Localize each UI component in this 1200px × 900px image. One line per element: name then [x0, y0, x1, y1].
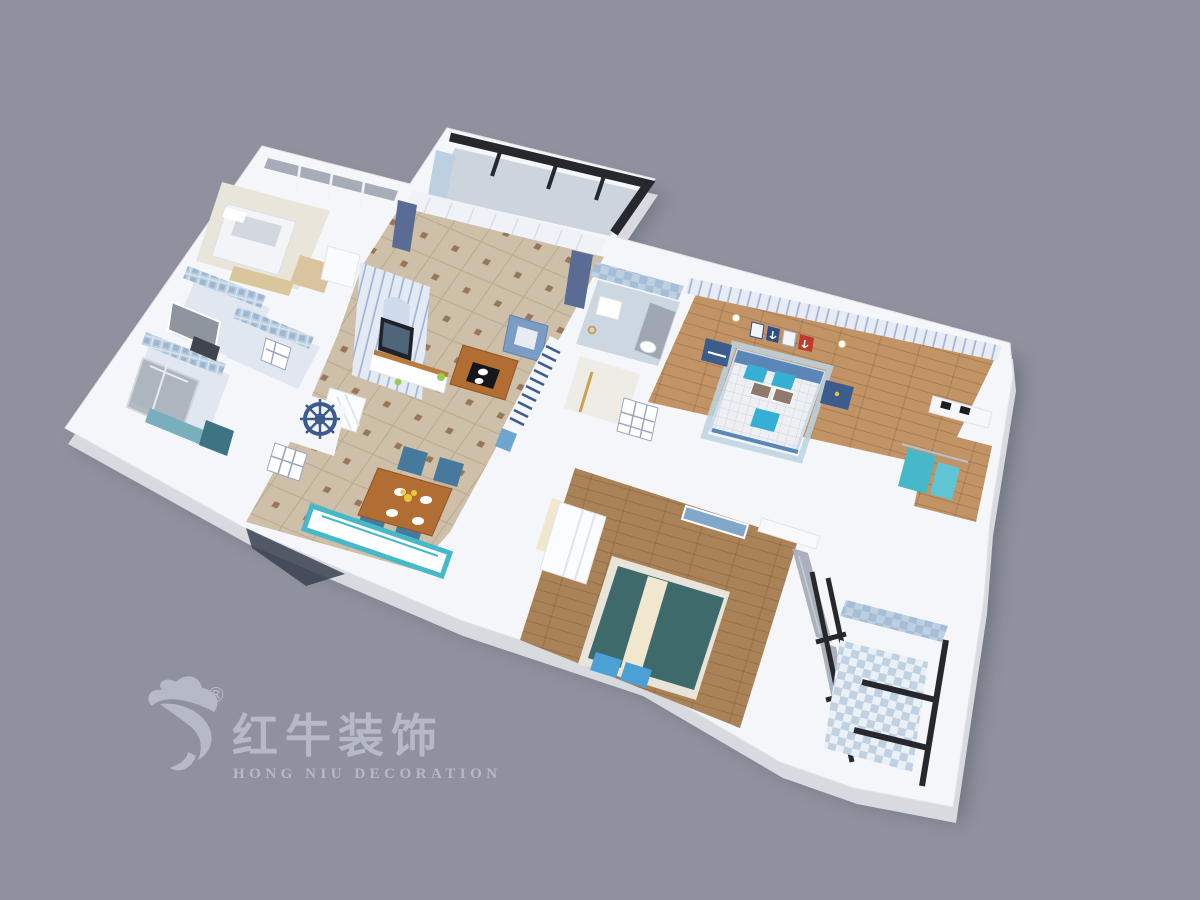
registered-mark: ® — [206, 683, 226, 707]
ship-wheel-decor — [300, 399, 340, 439]
brand-name-en: HONG NIU DECORATION — [233, 766, 502, 782]
wall-sconce-right-icon — [838, 340, 846, 348]
plate3-icon — [386, 509, 398, 517]
green-plant-icon — [437, 373, 445, 381]
brand-watermark: ® 红牛装饰 HONG NIU DECORATION — [148, 676, 501, 782]
art-frame-3 — [782, 330, 796, 347]
flowers3-icon — [400, 489, 405, 494]
tray-plate-icon — [478, 369, 488, 376]
flowers2-icon — [411, 490, 417, 496]
tray-plate2-icon — [475, 378, 484, 384]
art-frame-1 — [750, 322, 764, 339]
plate4-icon — [412, 517, 424, 525]
wall-sconce-left-icon — [732, 314, 740, 322]
flowers-icon — [404, 494, 412, 502]
plate2-icon — [420, 496, 432, 504]
ship-wheel-spokes-icon — [300, 399, 340, 439]
floorplan-render: ® 红牛装饰 HONG NIU DECORATION — [0, 0, 1200, 900]
laundry-floor-checker — [824, 640, 928, 772]
render-canvas: ® 红牛装饰 HONG NIU DECORATION — [0, 0, 1200, 900]
brand-name-cn: 红牛装饰 — [232, 709, 444, 763]
gold-knob-icon — [835, 392, 839, 396]
green-plant2-icon — [395, 379, 402, 386]
